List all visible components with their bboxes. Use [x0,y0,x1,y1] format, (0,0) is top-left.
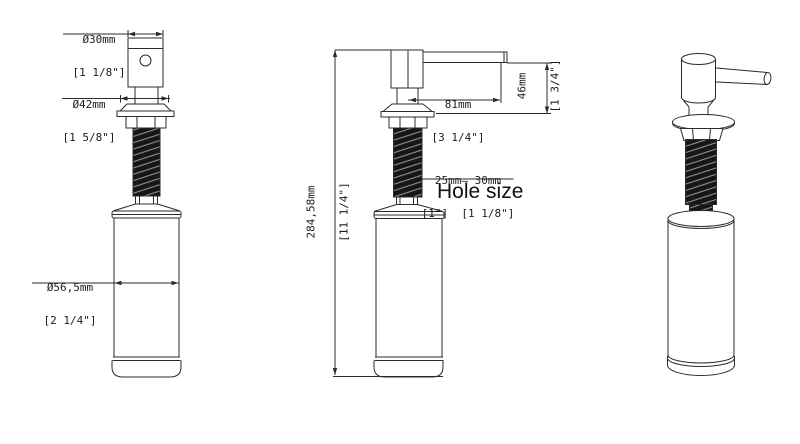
pump-head [128,38,163,104]
mounting-flange [117,104,174,117]
hole-size-label: Hole size [437,181,523,203]
total-height-imperial: [11 1/4"] [339,182,350,242]
dim-total-height-label: 284,58mm [11 1/4"] [284,182,361,242]
dim-bottle-diameter-label: Ø56,5mm [2 1/4"] [39,260,101,337]
threaded-shaft [133,128,160,196]
mounting-nut [126,117,166,129]
bottle-diameter-imperial: [2 1/4"] [39,315,101,326]
technical-drawing-canvas: Ø30mm [1 1/8"] Ø42mm [1 5/8"] Ø56,5mm [2… [0,0,800,444]
dim-spout-height-label: 46mm [1 3/4"] [495,60,572,113]
mounting-nut [681,129,724,141]
pump-head [682,54,716,118]
mounting-nut [389,117,427,128]
dim-flange-diameter-label: Ø42mm [1 5/8"] [58,77,120,154]
shaft-collar [397,197,418,205]
hole-size-range-imperial: [1"] [1 1/8"] [418,208,518,219]
bottle-diameter-metric: Ø56,5mm [39,282,101,293]
spout-height-metric: 46mm [517,60,528,113]
flange-diameter-imperial: [1 5/8"] [58,132,120,143]
soap-bottle [668,211,735,376]
iso-view [668,54,772,376]
soap-bottle [374,205,444,378]
flange-diameter-metric: Ø42mm [58,99,120,110]
shaft-collar [136,196,158,204]
dim-spout-reach-label: 81mm [3 1/4"] [427,77,489,154]
head-diameter-metric: Ø30mm [68,34,130,45]
spout-reach-imperial: [3 1/4"] [427,132,489,143]
soap-bottle [112,204,181,377]
total-height-metric: 284,58mm [306,182,317,242]
threaded-shaft [686,140,717,212]
pump-head-hole [140,55,151,66]
spout-height-imperial: [1 3/4"] [550,60,561,113]
pump-head [391,50,423,104]
spout-reach-metric: 81mm [427,99,489,110]
